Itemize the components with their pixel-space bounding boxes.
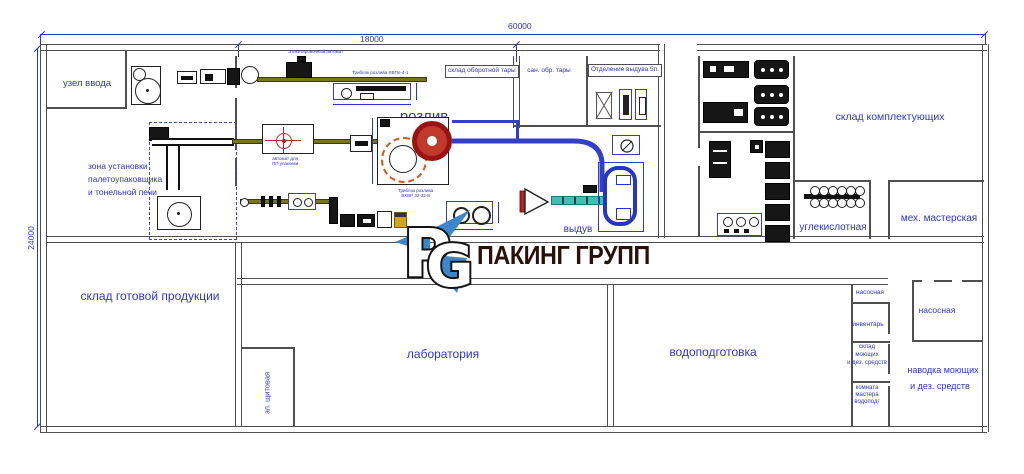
machine-part <box>297 56 306 62</box>
compressor-unit <box>754 85 789 104</box>
room-label-detergents-2: моющих <box>855 352 878 358</box>
machine-cabinet <box>200 69 226 84</box>
control-cabinet <box>612 135 640 155</box>
compressor-unit <box>754 60 789 79</box>
logo-letter-g: G <box>426 232 474 300</box>
machine-part <box>750 140 763 153</box>
logo-brand-text: ПАКИНГ ГРУПП <box>477 240 650 271</box>
wall <box>40 44 660 51</box>
wall <box>851 302 890 304</box>
machine-tower <box>765 141 790 242</box>
zone-label-line1: зона установки <box>88 162 148 171</box>
room-label-input-node: узел ввода <box>63 79 111 89</box>
co2-cylinder-manifold <box>802 186 866 208</box>
wall <box>869 180 871 239</box>
compressor-machine <box>131 66 161 105</box>
wall <box>888 180 984 182</box>
zone-label-line2: палетоупаковщика <box>88 175 162 184</box>
sanitizer-crossed-box <box>596 92 612 119</box>
wall <box>513 125 661 127</box>
dimension-line-60000 <box>40 34 986 35</box>
dimension-total-height: 24000 <box>27 226 36 250</box>
room-label-co2: углекислотная <box>799 223 866 233</box>
equipment-label-labeler: Этикетировочный автомат <box>288 49 343 54</box>
carousel-red <box>412 121 452 161</box>
equipment-label-triblock1: Триблок розлива ХВПл-4-1 <box>352 70 408 75</box>
equipment-label-avtomat: автомат для ПП упаковки <box>272 156 298 166</box>
air-conveyor <box>452 120 518 123</box>
room-label-master-room-1: комната <box>856 385 879 391</box>
room-label-pump-small: насосная <box>856 290 884 297</box>
conveyor-left-vertical <box>166 146 180 190</box>
machine-part <box>277 196 281 207</box>
factory-floor-plan: 60000 18000 24000 <box>0 0 1024 474</box>
machine-part <box>269 196 273 207</box>
wall <box>851 341 890 343</box>
dimension-mark <box>333 104 411 105</box>
wrapping-machine <box>262 124 314 154</box>
dimension-mark <box>372 118 373 184</box>
filling-triblock-frame <box>333 83 411 100</box>
wall <box>912 340 982 342</box>
wall <box>125 50 127 108</box>
wall <box>888 302 890 334</box>
dimension-mark <box>416 83 417 100</box>
palletizer-machine <box>157 196 201 230</box>
room-label-detergents-3: и дез. средств <box>847 360 887 366</box>
wall <box>795 180 869 182</box>
conveyor-elbow <box>329 197 338 224</box>
wall-lab-water <box>607 284 614 426</box>
room-label-inventory: инвентарь <box>852 322 883 329</box>
wall <box>851 284 853 426</box>
compressor-unit <box>754 107 789 126</box>
machine-part <box>380 119 390 127</box>
machine-part <box>261 196 265 207</box>
dimension-line-24000 <box>37 48 38 427</box>
labeler-machine <box>286 62 312 78</box>
machine-cabinet <box>177 71 197 84</box>
cabinet <box>635 89 647 120</box>
room-label-mech-workshop: мех. мастерская <box>901 214 977 224</box>
wall <box>293 347 295 426</box>
cabinet-tall <box>709 141 731 178</box>
roller <box>240 198 249 207</box>
room-label-returnable-containers: склад оборотной тары <box>445 65 519 78</box>
room-label-water-treatment: водоподготовка <box>669 346 756 358</box>
machine-cabinet <box>350 135 372 152</box>
wall <box>241 347 295 349</box>
wall <box>793 56 795 239</box>
room-label-blowing-dept: Отделение выдува 5п. <box>588 64 662 77</box>
room-label-san-containers: сан. обр. тары <box>527 68 570 75</box>
room-label-components-warehouse: склад комплектующих <box>836 112 945 123</box>
wall <box>934 280 952 282</box>
wall <box>46 107 127 109</box>
equipment-label-triblock2: Триблок розлива ВХВР 32-32-8 <box>398 188 433 198</box>
room-label-dilution-1: наводка моющих <box>907 366 978 375</box>
wall <box>912 280 914 340</box>
zone-label-line3: и тонельной печи <box>88 188 157 197</box>
machine-block <box>227 68 240 85</box>
wall <box>962 280 982 282</box>
room-label-electrical: эл. щитовая <box>263 372 271 414</box>
room-label-detergents-1: склад <box>859 344 875 350</box>
wall <box>698 166 700 236</box>
compressor-unit <box>703 102 748 123</box>
room-label-finished-goods: склад готовой продукции <box>80 290 219 302</box>
room-label-master-room-3: водоподг <box>854 399 879 405</box>
compressor-unit <box>703 61 749 78</box>
room-label-master-room-2: мастера <box>855 392 878 398</box>
cabinet <box>619 89 632 120</box>
dimension-line-width: 18000 <box>360 35 384 44</box>
wall <box>888 386 890 426</box>
wall <box>699 131 793 133</box>
machine-block <box>340 214 355 227</box>
conveyor-packing <box>240 199 332 204</box>
dimension-total-width: 60000 <box>508 22 532 31</box>
room-label-pump-big: насосная <box>919 306 956 315</box>
control-desk <box>717 213 762 236</box>
conveyor-left <box>152 138 234 146</box>
conveyor-top-line <box>257 77 427 82</box>
wall <box>888 344 890 374</box>
machine-part <box>583 185 597 193</box>
wall <box>698 56 700 148</box>
wall <box>40 426 987 433</box>
room-label-laboratory: лаборатория <box>407 348 479 360</box>
wall-warehouse-right <box>235 242 242 426</box>
wall <box>697 44 987 51</box>
shrink-tunnel <box>288 193 316 210</box>
wall <box>888 180 890 239</box>
wall <box>851 381 890 383</box>
room-label-dilution-2: и дез. средств <box>910 382 970 391</box>
